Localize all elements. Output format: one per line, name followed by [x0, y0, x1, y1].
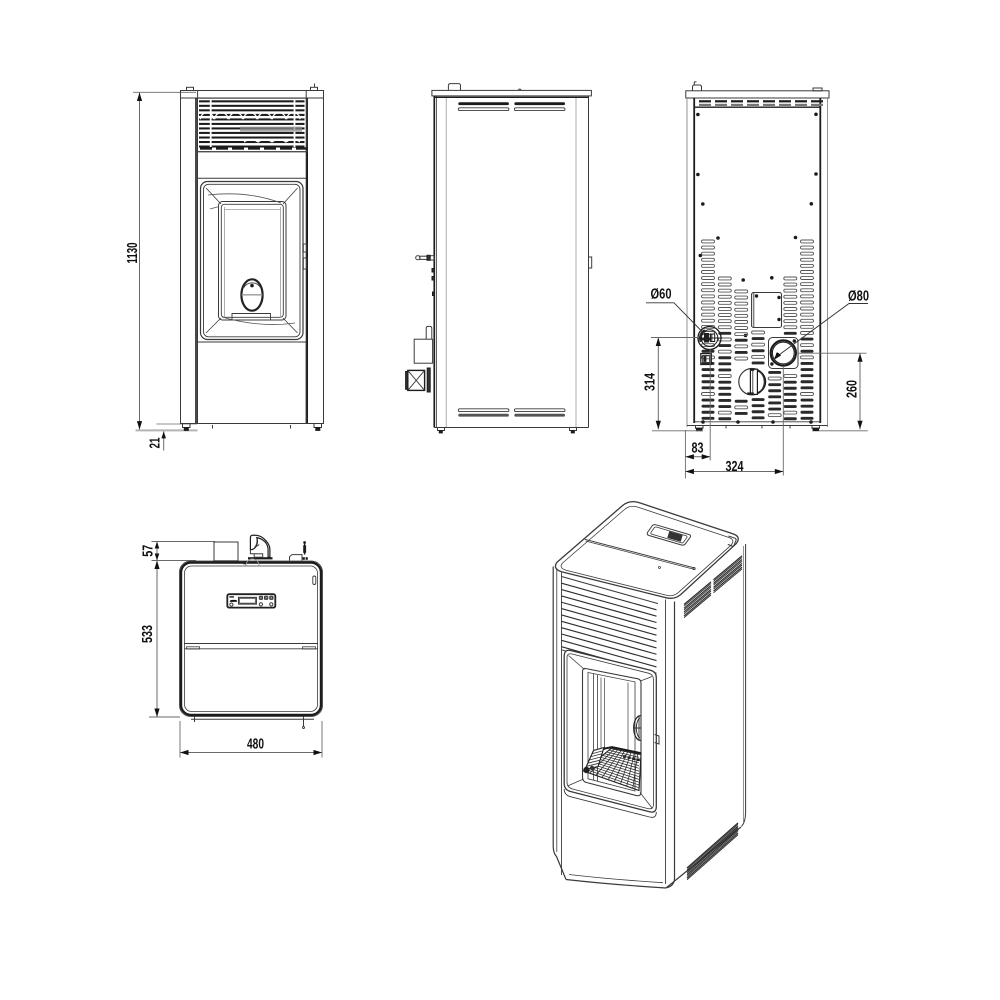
svg-text:324: 324: [726, 459, 744, 475]
svg-text:57: 57: [140, 545, 156, 557]
svg-text:83: 83: [692, 440, 704, 456]
svg-text:21: 21: [148, 438, 164, 449]
svg-text:533: 533: [140, 625, 156, 643]
svg-text:260: 260: [844, 380, 860, 398]
svg-text:Ø60: Ø60: [651, 286, 672, 302]
svg-text:314: 314: [642, 373, 658, 391]
svg-text:1130: 1130: [125, 243, 141, 264]
svg-text:480: 480: [247, 736, 264, 752]
svg-text:Ø80: Ø80: [848, 288, 869, 304]
